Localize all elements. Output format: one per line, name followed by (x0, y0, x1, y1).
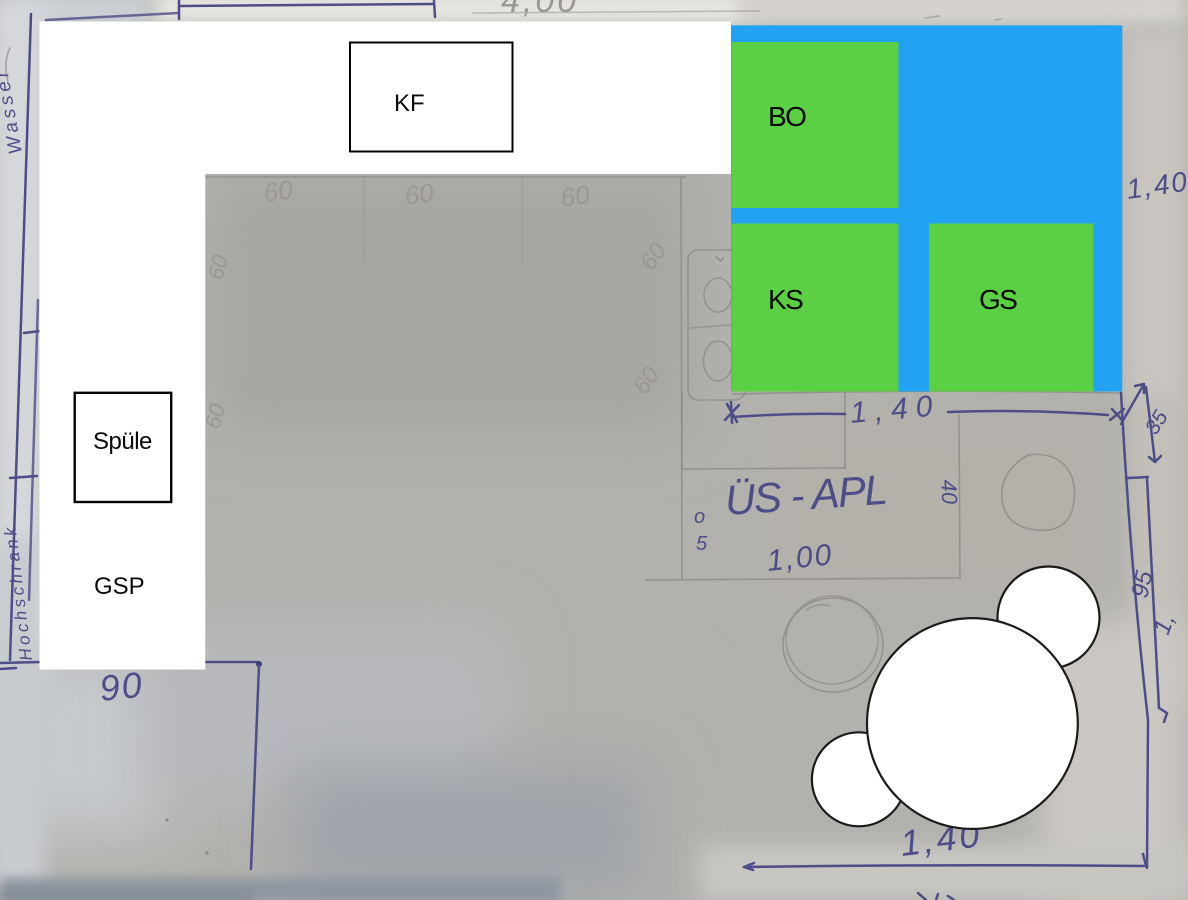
svg-text:90: 90 (98, 664, 146, 709)
svg-text:1,00: 1,00 (765, 538, 834, 578)
svg-text:GSP: GSP (94, 573, 145, 600)
svg-text:GS: GS (979, 284, 1017, 315)
svg-text:60: 60 (559, 179, 592, 213)
svg-text:KS: KS (768, 284, 803, 315)
svg-text:BO: BO (768, 101, 806, 132)
svg-text:60: 60 (262, 174, 295, 208)
svg-text:Spüle: Spüle (93, 428, 152, 455)
svg-text:KF: KF (394, 90, 425, 117)
svg-text:5: 5 (696, 533, 708, 555)
svg-text:4,00: 4,00 (501, 0, 579, 20)
svg-text:60: 60 (403, 177, 436, 211)
svg-text:o: o (694, 506, 705, 528)
svg-text:40: 40 (936, 479, 962, 506)
